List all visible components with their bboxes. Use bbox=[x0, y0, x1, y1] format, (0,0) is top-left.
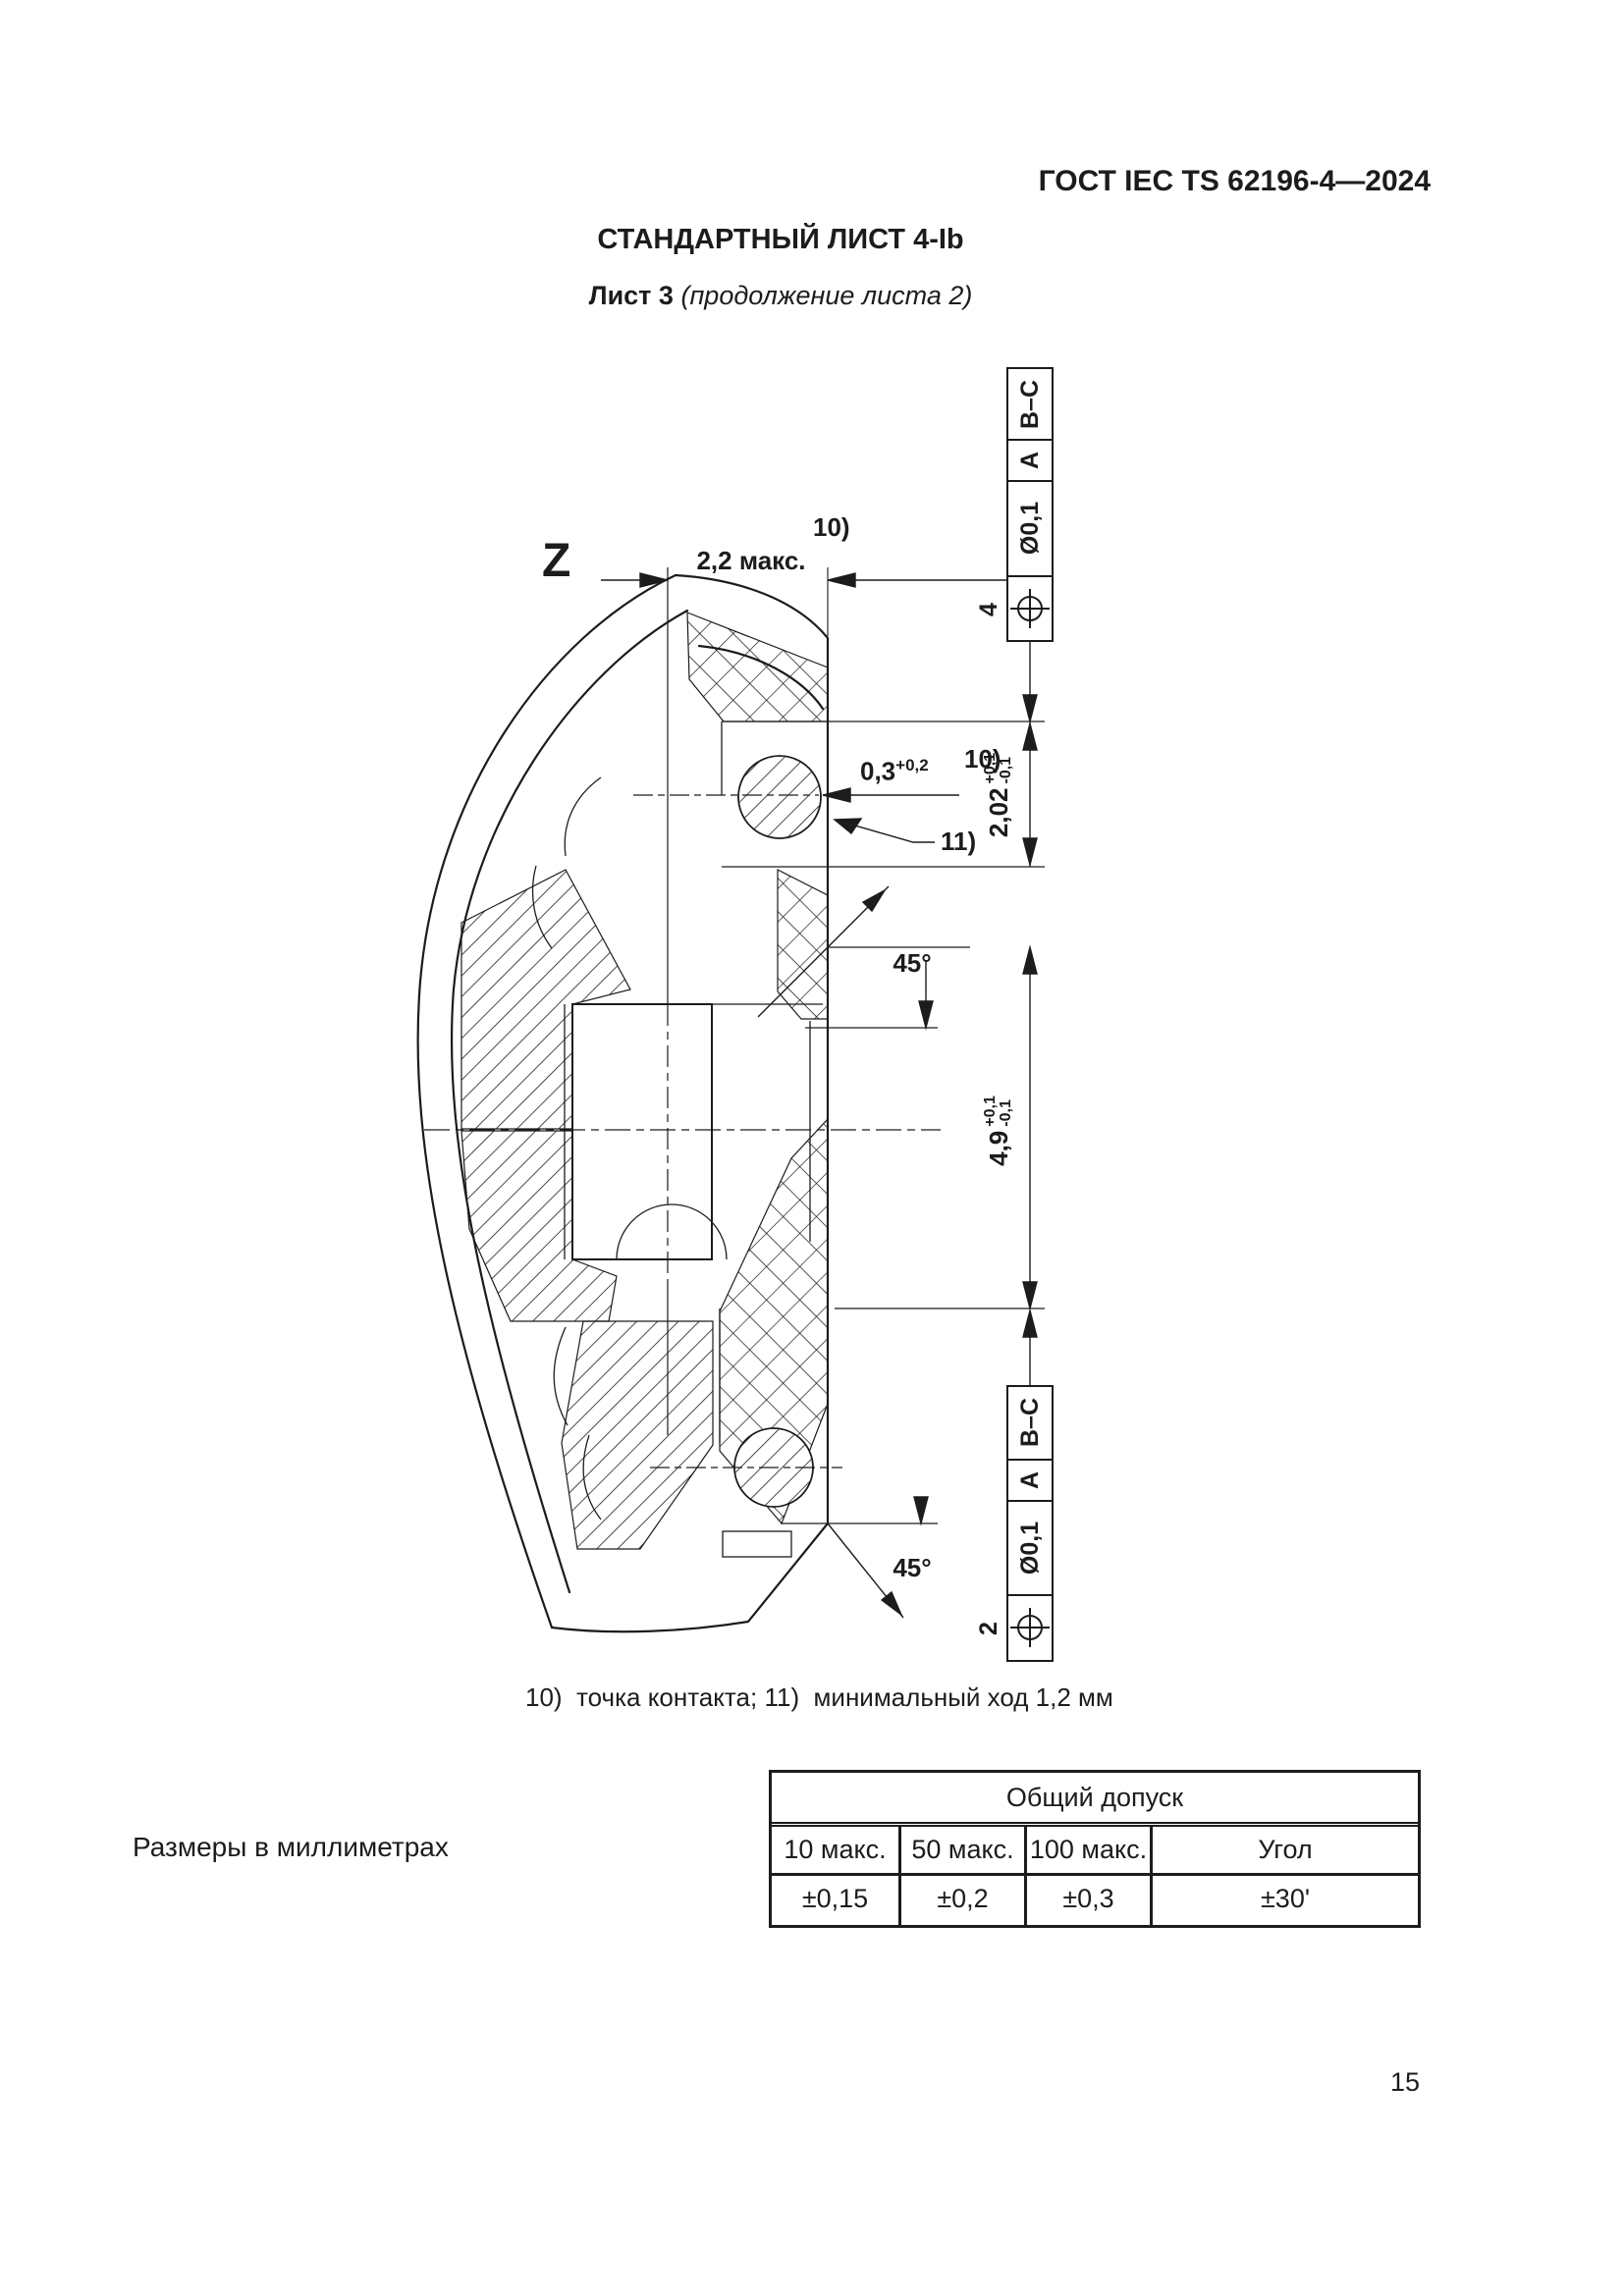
angle-bottom: 45° bbox=[883, 1553, 942, 1583]
sheet-subtitle: Лист 3 (продолжение листа 2) bbox=[412, 281, 1149, 311]
table-header-cell: 50 макс. bbox=[898, 1827, 1024, 1876]
table-value-cell: ±0,3 bbox=[1024, 1876, 1150, 1925]
angle-top: 45° bbox=[883, 948, 942, 979]
page-title: СТАНДАРТНЫЙ ЛИСТ 4-Ib bbox=[412, 224, 1149, 256]
table-title: Общий допуск bbox=[772, 1773, 1418, 1827]
table-header-cell: Угол bbox=[1150, 1827, 1418, 1876]
hatch-lower-left-block bbox=[562, 1321, 713, 1549]
view-label-z: Z bbox=[542, 534, 570, 588]
drawing-footnote: 10) точка контакта; 11) минимальный ход … bbox=[525, 1682, 1113, 1713]
fcf-top-item-number: 4 bbox=[972, 593, 1005, 626]
note-10-top: 10) bbox=[813, 512, 850, 543]
general-tolerance-table: Общий допуск 10 макс. 50 макс. 100 макс.… bbox=[769, 1770, 1421, 1928]
table-value-cell: ±30' bbox=[1150, 1876, 1418, 1925]
fcf-bottom-tolerance: Ø0,1 bbox=[1014, 1501, 1046, 1595]
table-header-row: 10 макс. 50 макс. 100 макс. Угол bbox=[772, 1827, 1418, 1876]
gost-document-page: { "header": { "doc_code": "ГОСТ IEC TS 6… bbox=[0, 0, 1624, 2296]
table-header-cell: 100 макс. bbox=[1024, 1827, 1150, 1876]
hatch-top-band bbox=[687, 613, 828, 721]
dim-height-total: 4,9 +0,1 -0,1 bbox=[977, 1062, 1020, 1200]
table-value-cell: ±0,15 bbox=[772, 1876, 898, 1925]
dimensions-note: Размеры в миллиметрах bbox=[133, 1832, 449, 1863]
hatch-face-upper bbox=[778, 870, 828, 1019]
technical-drawing bbox=[412, 344, 1080, 1679]
page-number: 15 bbox=[1390, 2067, 1420, 2098]
dim-contact-gap: 0,3+0,2 bbox=[860, 756, 929, 787]
tolerance-stack: +0,1 -0,1 bbox=[983, 1095, 1014, 1127]
tolerance-stack: +0,1 -0,1 bbox=[983, 753, 1014, 784]
document-code: ГОСТ IEC TS 62196-4—2024 bbox=[1039, 165, 1431, 198]
sheet-number: Лист 3 bbox=[589, 281, 674, 310]
table-value-cell: ±0,2 bbox=[898, 1876, 1024, 1925]
note-11: 11) bbox=[941, 827, 976, 857]
dim-height-contact: 2,02 +0,1 -0,1 bbox=[977, 726, 1020, 864]
sheet-continuation: (продолжение листа 2) bbox=[680, 281, 972, 310]
fcf-top-tolerance: Ø0,1 bbox=[1014, 481, 1046, 575]
fcf-bottom-item-number: 2 bbox=[972, 1612, 1005, 1645]
dim-width-max: 2,2 макс. bbox=[668, 546, 835, 576]
table-header-cell: 10 макс. bbox=[772, 1827, 898, 1876]
table-value-row: ±0,15 ±0,2 ±0,3 ±30' bbox=[772, 1876, 1418, 1925]
